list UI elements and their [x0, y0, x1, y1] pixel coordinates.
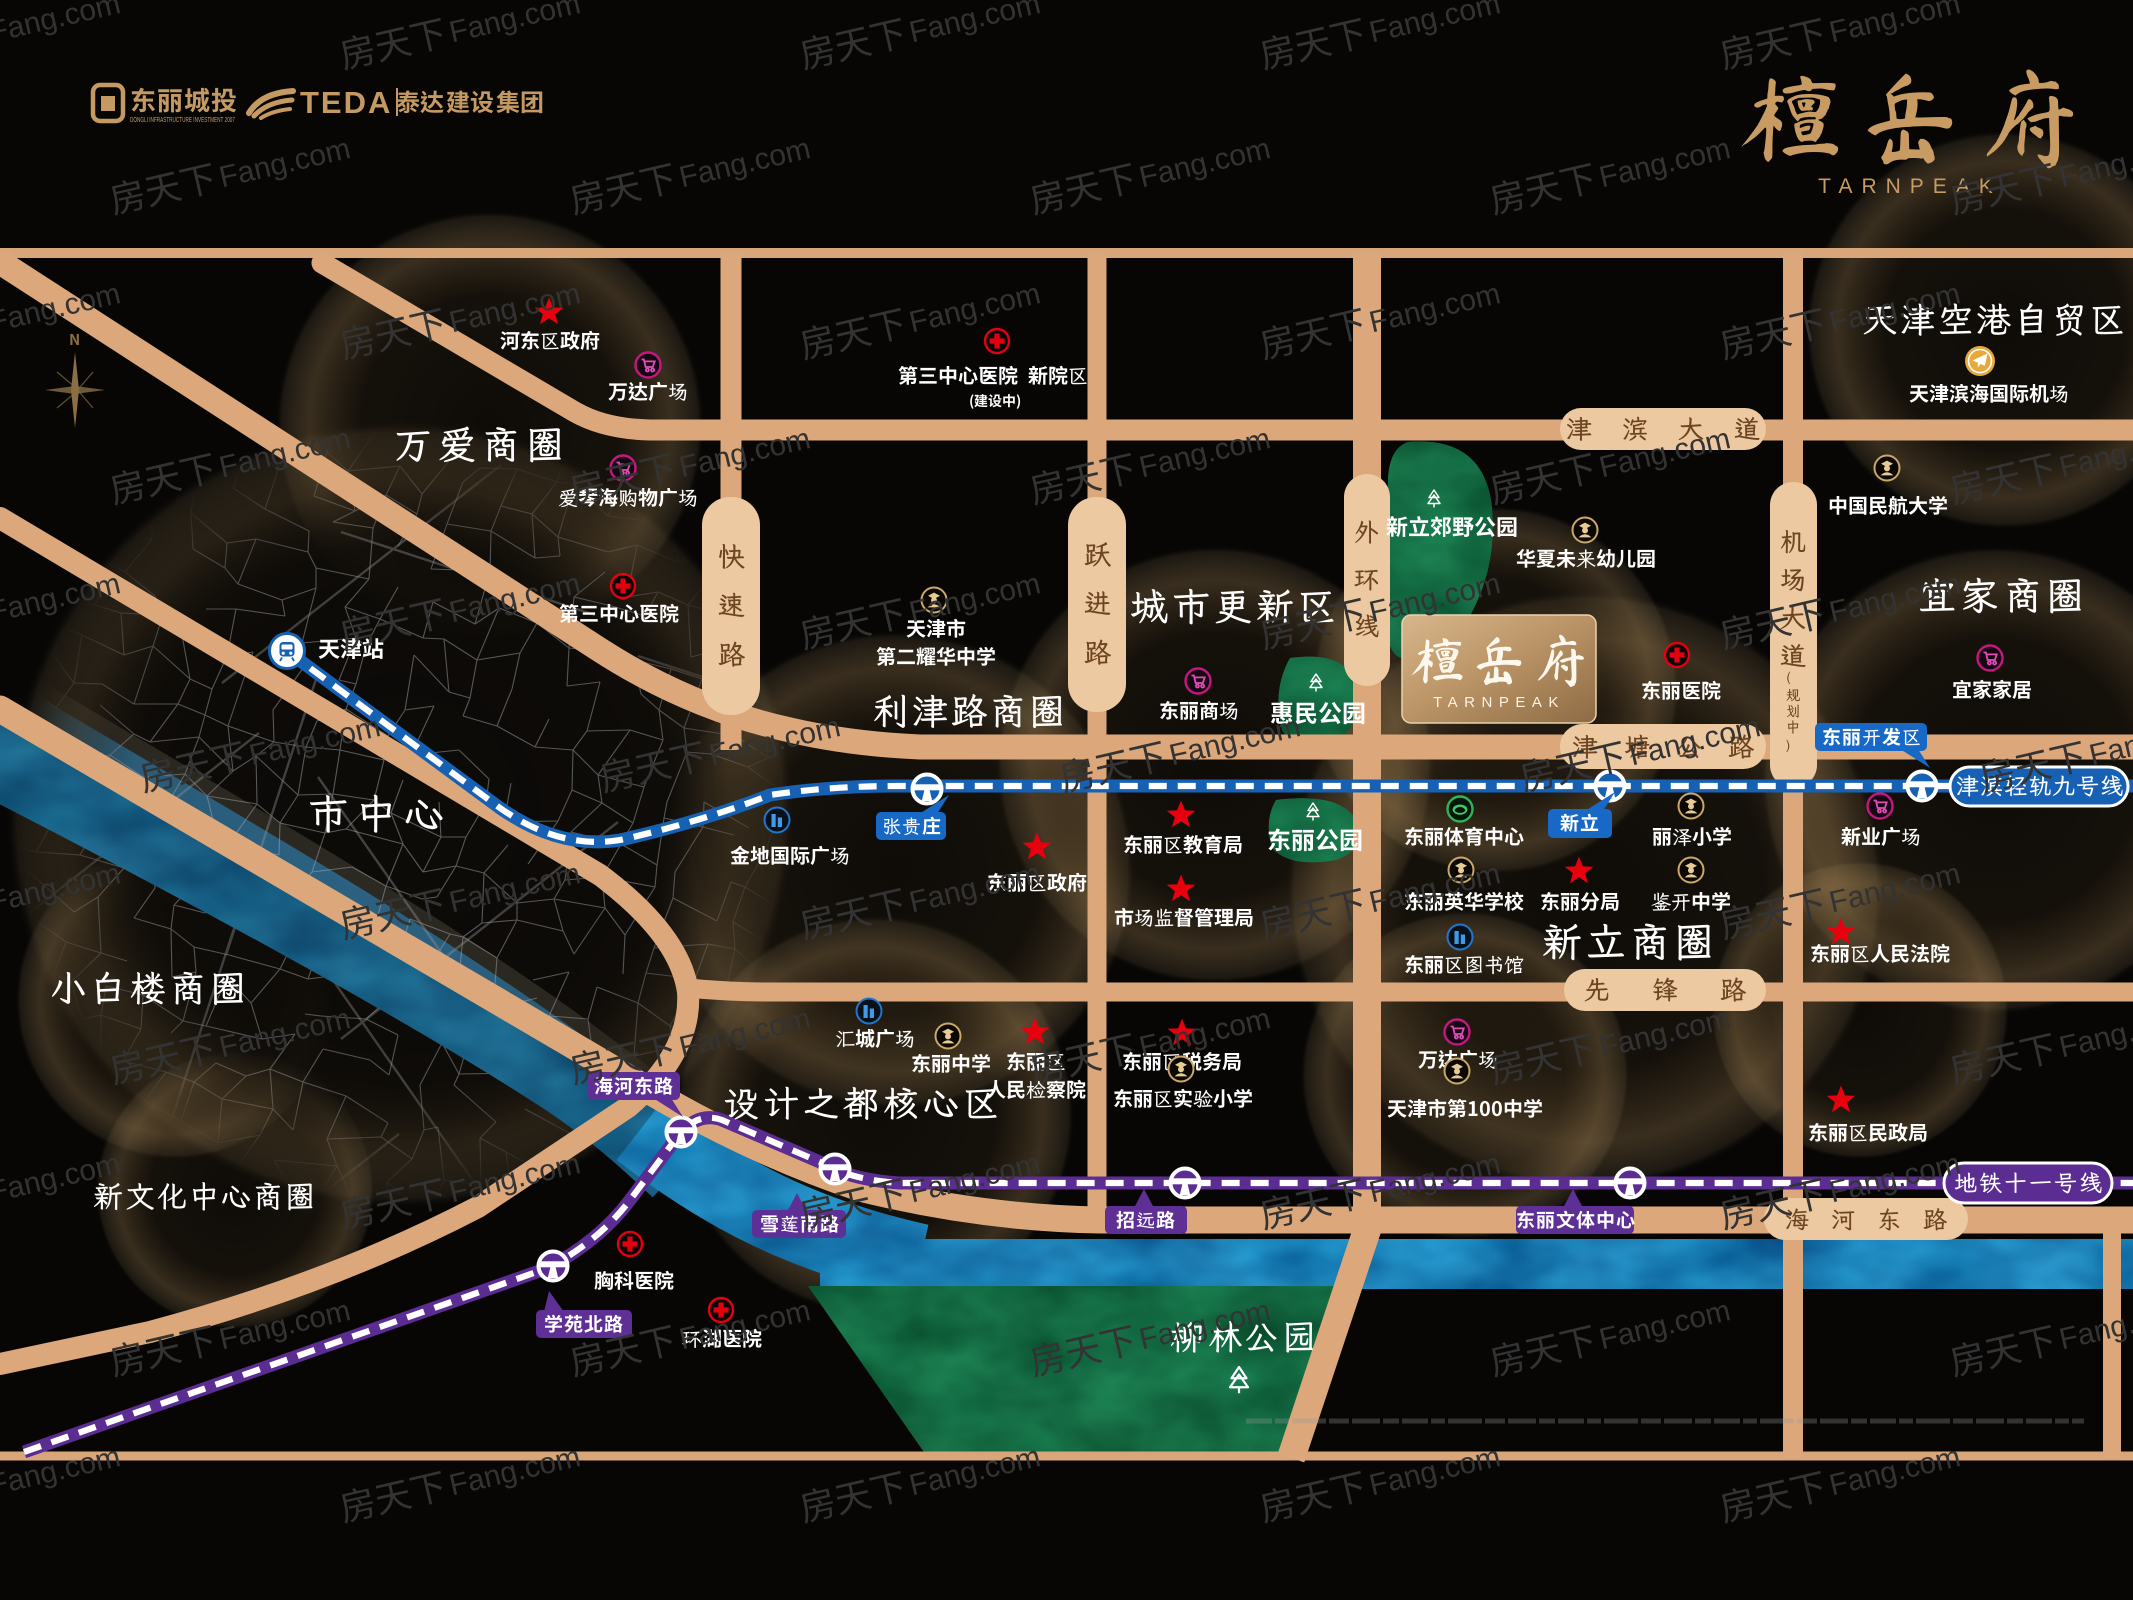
svg-text:DONGLI INFRASTRUCTURE INVESTME: DONGLI INFRASTRUCTURE INVESTMENT 2007: [130, 117, 235, 124]
svg-text:TEDA: TEDA: [300, 85, 392, 120]
svg-text:TARNPEAK: TARNPEAK: [1433, 694, 1565, 711]
svg-text:TARNPEAK: TARNPEAK: [1818, 175, 2002, 198]
